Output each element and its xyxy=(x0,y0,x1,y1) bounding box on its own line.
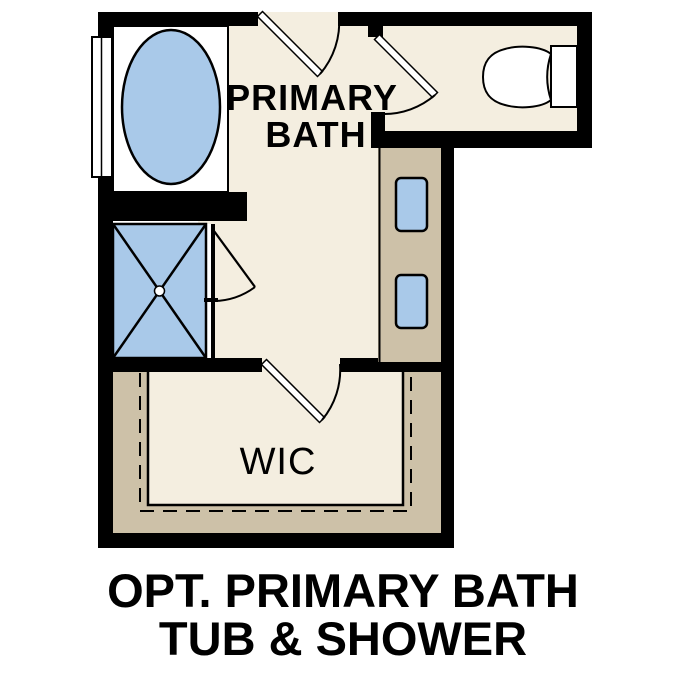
floorplan-canvas: PRIMARY BATH WIC OPT. PRIMARY BATH TUB &… xyxy=(0,0,687,687)
shower-glass-wall xyxy=(211,224,215,358)
wall-segment xyxy=(338,12,592,26)
bathtub-icon xyxy=(122,30,220,184)
caption: OPT. PRIMARY BATH TUB & SHOWER xyxy=(107,564,579,665)
wall-segment xyxy=(98,533,454,548)
bathtub-area xyxy=(92,26,228,192)
primary-bath-label-line1: PRIMARY xyxy=(226,77,398,118)
floorplan-drawing: PRIMARY BATH WIC OPT. PRIMARY BATH TUB &… xyxy=(0,0,687,687)
wic-floor xyxy=(148,372,403,505)
wall-segment xyxy=(441,148,454,548)
sink-icon xyxy=(396,275,427,328)
caption-line1: OPT. PRIMARY BATH xyxy=(107,564,579,617)
wall-segment xyxy=(577,12,592,148)
toilet-tank-icon xyxy=(551,46,577,107)
caption-line2: TUB & SHOWER xyxy=(159,612,527,665)
sink-icon xyxy=(396,178,427,231)
shower-drain-icon xyxy=(155,286,165,296)
vanity-area xyxy=(378,148,441,362)
wall-segment xyxy=(98,358,262,372)
toilet-area xyxy=(483,46,577,107)
primary-bath-label-line2: BATH xyxy=(265,114,366,155)
wall-segment xyxy=(98,12,258,26)
toilet-bowl-icon xyxy=(483,47,551,108)
wic-label: WIC xyxy=(240,441,317,483)
wall-segment xyxy=(98,192,247,221)
wall-segment xyxy=(371,131,592,148)
